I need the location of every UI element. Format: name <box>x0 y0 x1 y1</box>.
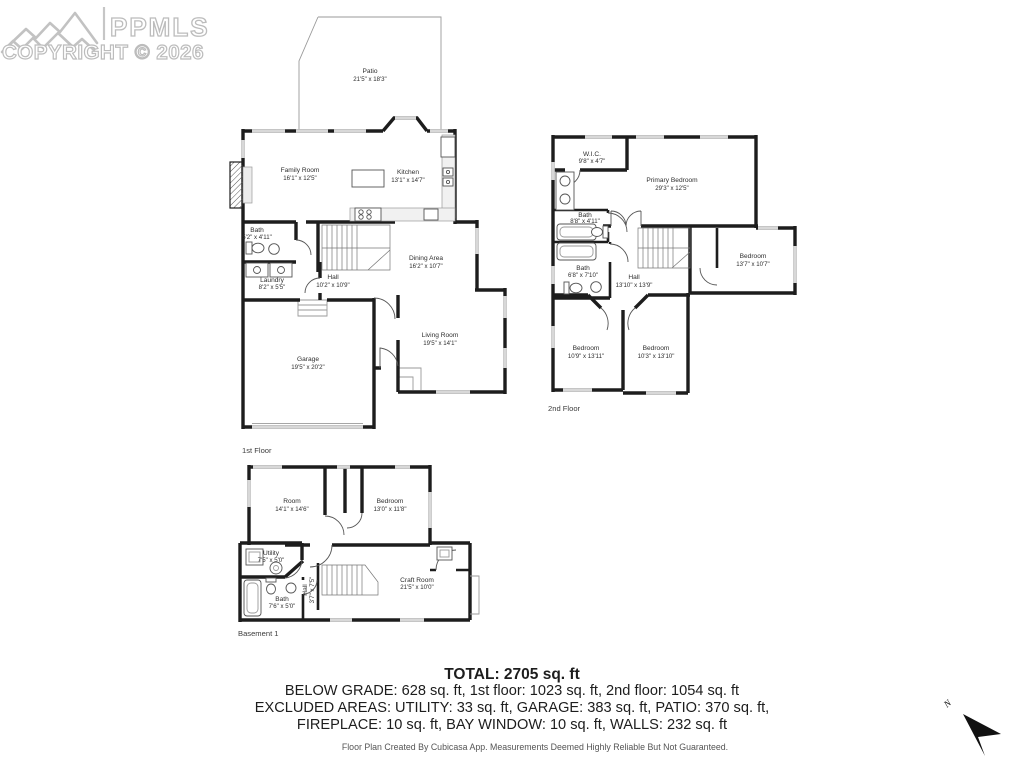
room-label: Kitchen <box>397 169 419 176</box>
room-dims: 16'1" x 12'5" <box>283 175 316 182</box>
room-label: Hall <box>302 584 309 596</box>
laundry-fixtures <box>246 263 292 277</box>
porch-steps <box>398 368 421 390</box>
floor-caption: Basement 1 <box>238 629 279 638</box>
basement-plan: Room 14'1" x 14'6" Bedroom 13'0" x 11'8"… <box>238 465 479 638</box>
room-dims: 8'8" x 4'11" <box>570 218 600 225</box>
logo-brand: PPMLS <box>110 12 210 42</box>
mech-closet <box>437 547 452 560</box>
floor-caption: 1st Floor <box>242 446 272 455</box>
dishwasher-icon <box>424 209 438 220</box>
sink-icon <box>560 194 570 204</box>
room-label: Garage <box>297 356 319 363</box>
room-label: Laundry <box>260 277 285 284</box>
first-floor-plan: Patio 21'5" x 18'3" Family Room 16'1" x … <box>230 17 505 455</box>
summary-line-2: EXCLUDED AREAS: UTILITY: 33 sq. ft, GARA… <box>0 700 1024 717</box>
room-label: Family Room <box>281 167 320 174</box>
toilet-icon <box>603 226 608 238</box>
area-summary: TOTAL: 2705 sq. ft BELOW GRADE: 628 sq. … <box>0 666 1024 735</box>
floor-plan-page: PPMLS COPYRIGHT © 2026 <box>0 0 1024 767</box>
fireplace-icon <box>230 162 252 208</box>
basement-interior-walls <box>303 563 470 620</box>
room-dims: 10'9" x 13'11" <box>568 353 604 360</box>
sink-icon <box>560 176 570 186</box>
room-label: Craft Room <box>400 577 434 584</box>
room-label: Living Room <box>422 332 459 339</box>
bath-fixtures <box>246 242 279 254</box>
stairs-icon <box>322 225 390 270</box>
primary-bath-fixtures <box>556 172 608 240</box>
room-label: Hall <box>327 274 339 281</box>
room-label: Utility <box>263 550 280 557</box>
room-dims: 21'5" x 18'3" <box>353 76 386 83</box>
toilet-icon <box>564 282 569 294</box>
second-floor-plan: W.I.C. 9'8" x 4'7" Primary Bedroom 29'3"… <box>548 135 795 413</box>
garage-steps-icon <box>298 300 327 316</box>
floor-plan-drawing: PPMLS COPYRIGHT © 2026 <box>0 0 1024 767</box>
room-dims: 10'2" x 10'9" <box>316 282 349 289</box>
summary-line-1: BELOW GRADE: 628 sq. ft, 1st floor: 1023… <box>0 683 1024 700</box>
room-label: Bedroom <box>377 498 404 505</box>
room-dims: 3'7" x 7'5" <box>309 577 316 604</box>
sink-icon <box>286 583 296 593</box>
room-dims: 10'3" x 13'10" <box>638 353 675 360</box>
disclaimer: Floor Plan Created By Cubicasa App. Meas… <box>46 742 1024 752</box>
room-dims: 16'2" x 10'7" <box>409 263 442 270</box>
room-label: Bath <box>250 227 264 234</box>
room-dims: 7'6" x 5'0" <box>269 603 296 610</box>
room-dims: 9'8" x 4'7" <box>579 158 606 165</box>
fridge-icon <box>441 137 455 157</box>
room-label: Dining Area <box>409 255 443 262</box>
room-label: Bedroom <box>573 345 600 352</box>
room-label: Room <box>283 498 301 505</box>
room-dims: 13'1" x 14'7" <box>391 177 424 184</box>
room-label: Bath <box>275 596 289 603</box>
summary-line-3: FIREPLACE: 10 sq. ft, BAY WINDOW: 10 sq.… <box>0 717 1024 734</box>
room-dims: 7'5" x 5'0" <box>258 557 285 564</box>
room-dims: 13'0" x 11'8" <box>374 506 407 513</box>
room-dims: 14'1" x 14'6" <box>275 506 308 513</box>
kitchen-island <box>352 170 384 187</box>
stairs-icon <box>638 228 690 268</box>
room-label: Hall <box>628 274 640 281</box>
sump-icon <box>437 547 452 560</box>
room-dims: 13'10" x 13'9" <box>616 282 653 289</box>
stairs-icon <box>322 565 378 595</box>
sink-icon <box>591 282 602 293</box>
toilet-icon <box>246 242 252 254</box>
room-dims: 19'5" x 14'1" <box>423 340 456 347</box>
room-dims: 29'3" x 12'5" <box>655 185 688 192</box>
total-area: TOTAL: 2705 sq. ft <box>0 666 1024 683</box>
room-dims: 13'7" x 10'7" <box>736 261 769 268</box>
tub-icon <box>557 224 596 240</box>
room-label: Bath <box>576 265 590 272</box>
room-dims: 19'5" x 20'2" <box>291 364 324 371</box>
sink-icon <box>269 244 280 255</box>
room-label: Primary Bedroom <box>646 177 698 184</box>
room-label: Bedroom <box>740 253 767 260</box>
logo-copyright: COPYRIGHT © 2026 <box>2 41 204 64</box>
toilet-icon <box>266 578 276 582</box>
floor-caption: 2nd Floor <box>548 404 581 413</box>
room-label: W.I.C. <box>583 151 601 158</box>
room-dims: 6'8" x 7'10" <box>568 272 598 279</box>
room-label: Bedroom <box>643 345 670 352</box>
room-dims: 5'2" x 4'11" <box>242 234 272 241</box>
room-label: Patio <box>362 68 377 75</box>
ppmls-logo: PPMLS COPYRIGHT © 2026 <box>2 7 210 64</box>
room-dims: 8'2" x 5'5" <box>259 284 286 291</box>
room-dims: 21'5" x 10'0" <box>400 584 433 591</box>
